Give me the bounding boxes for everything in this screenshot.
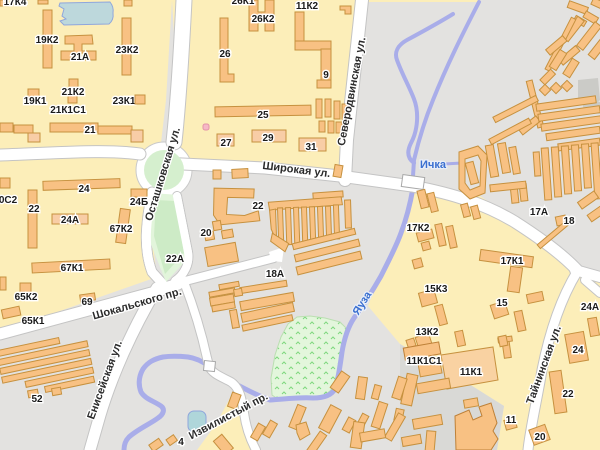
svg-text:17А: 17А bbox=[530, 207, 548, 218]
svg-text:4: 4 bbox=[178, 437, 184, 448]
svg-text:9: 9 bbox=[323, 70, 329, 81]
svg-text:0С2: 0С2 bbox=[0, 195, 18, 206]
svg-text:65К1: 65К1 bbox=[22, 316, 45, 327]
svg-text:23К1: 23К1 bbox=[113, 96, 136, 107]
svg-text:20: 20 bbox=[200, 228, 212, 239]
svg-text:24: 24 bbox=[78, 184, 90, 195]
svg-text:15: 15 bbox=[496, 298, 508, 309]
svg-text:24Б: 24Б bbox=[130, 197, 148, 208]
svg-text:18: 18 bbox=[563, 216, 575, 227]
svg-text:31: 31 bbox=[305, 142, 317, 153]
svg-text:22: 22 bbox=[28, 204, 40, 215]
svg-text:26К1: 26К1 bbox=[232, 0, 255, 7]
svg-text:26: 26 bbox=[219, 49, 231, 60]
svg-text:22А: 22А bbox=[166, 254, 184, 265]
svg-text:67К2: 67К2 bbox=[110, 224, 133, 235]
svg-text:11К1С1: 11К1С1 bbox=[406, 356, 441, 367]
svg-text:29: 29 bbox=[262, 133, 274, 144]
svg-text:21К2: 21К2 bbox=[62, 87, 85, 98]
svg-text:69: 69 bbox=[81, 297, 93, 308]
svg-text:67К1: 67К1 bbox=[61, 263, 84, 274]
svg-text:17К1: 17К1 bbox=[501, 256, 524, 267]
svg-text:52: 52 bbox=[31, 394, 43, 405]
svg-text:26К2: 26К2 bbox=[252, 14, 275, 25]
svg-text:11К1: 11К1 bbox=[460, 367, 483, 378]
svg-text:21К1С1: 21К1С1 bbox=[50, 105, 86, 116]
svg-text:Ичка: Ичка bbox=[420, 159, 447, 171]
svg-text:24А: 24А bbox=[581, 302, 599, 313]
svg-text:22: 22 bbox=[252, 201, 264, 212]
svg-text:18А: 18А bbox=[266, 269, 284, 280]
svg-text:19К2: 19К2 bbox=[36, 35, 59, 46]
svg-text:21А: 21А bbox=[71, 52, 89, 63]
svg-text:13К2: 13К2 bbox=[416, 327, 439, 338]
svg-text:23К2: 23К2 bbox=[116, 45, 139, 56]
svg-text:11: 11 bbox=[506, 415, 517, 426]
svg-text:17К2: 17К2 bbox=[407, 223, 430, 234]
svg-text:27: 27 bbox=[220, 138, 232, 149]
svg-text:19К1: 19К1 bbox=[24, 96, 47, 107]
svg-text:21: 21 bbox=[84, 125, 96, 136]
svg-text:20: 20 bbox=[534, 432, 546, 443]
svg-text:17К4: 17К4 bbox=[4, 0, 27, 8]
svg-text:24: 24 bbox=[572, 345, 584, 356]
svg-text:15К3: 15К3 bbox=[425, 284, 448, 295]
svg-text:65К2: 65К2 bbox=[15, 292, 38, 303]
svg-text:24А: 24А bbox=[61, 215, 79, 226]
svg-text:11К2: 11К2 bbox=[296, 1, 319, 12]
svg-text:25: 25 bbox=[257, 110, 269, 121]
svg-text:22: 22 bbox=[562, 389, 574, 400]
